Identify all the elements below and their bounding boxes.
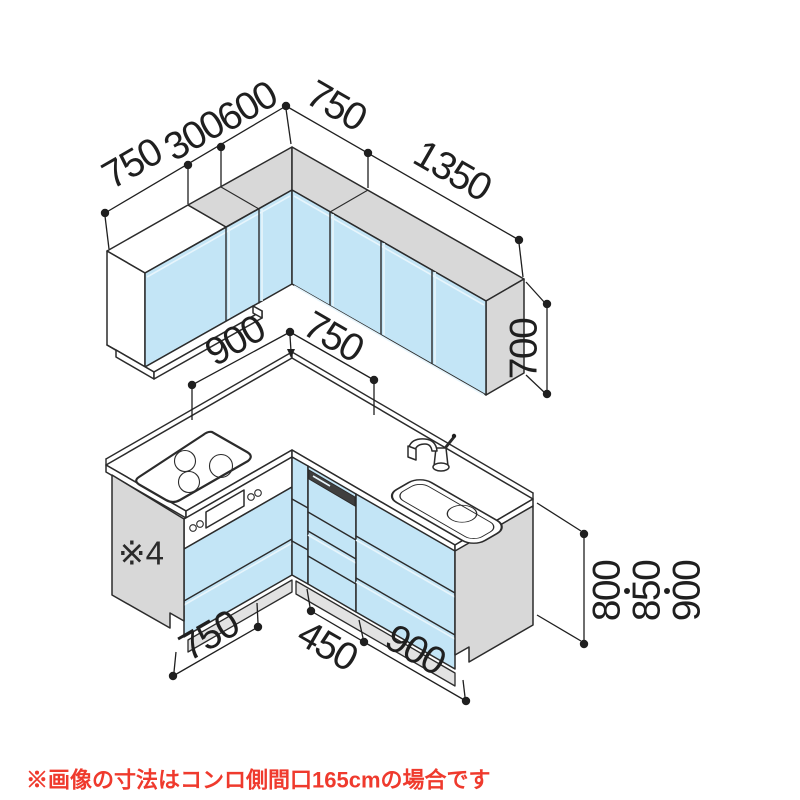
dim-height-850: 850	[626, 560, 669, 621]
dim-base-height: 800 850 900	[537, 503, 709, 648]
side-panel-annotation: ※4	[118, 535, 164, 572]
kitchen-dimension-diagram: ※4	[0, 0, 800, 800]
dim-wall-height-700: 700	[503, 318, 546, 379]
dim-height-900: 900	[666, 560, 709, 621]
isometric-kitchen-drawing: ※4	[0, 0, 800, 800]
corner-front	[292, 457, 308, 584]
dim-wall-right-750: 750	[299, 72, 374, 140]
dim-wall-left-750: 750	[95, 130, 170, 198]
footnote: ※画像の寸法はコンロ側間口165cmの場合です	[26, 768, 491, 793]
dim-wall-right-1350: 1350	[406, 132, 498, 210]
dim-height-800: 800	[586, 560, 629, 621]
